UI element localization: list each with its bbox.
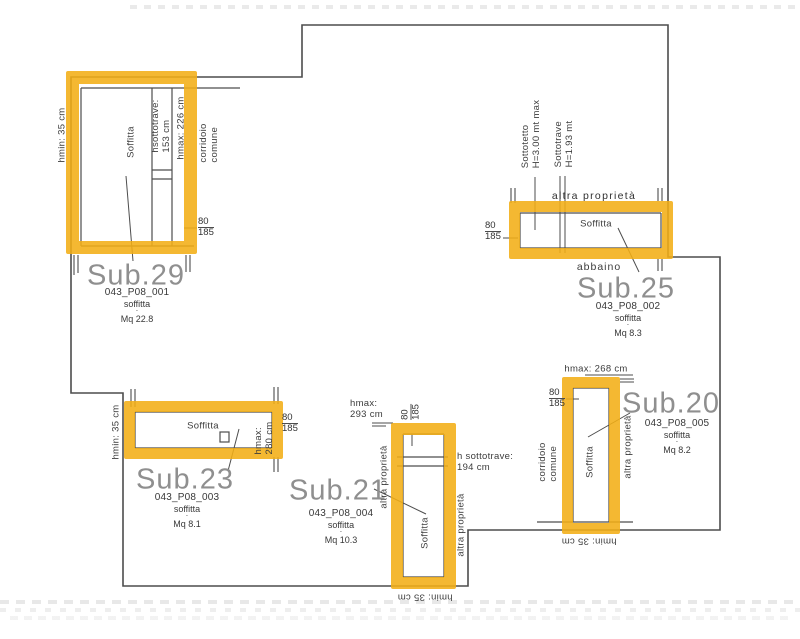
sub25-sottotrave-label: Sottotrave H=1.93 mt (554, 121, 576, 168)
door-height: 185 (282, 424, 298, 434)
sub23-door-size-label: 80 185 (282, 413, 298, 434)
sub25-caption: 043_P08_002 soffitta · Mq 8.3 (596, 301, 661, 338)
sub20-door-size-label: 80 185 (549, 388, 565, 409)
sub29-interior-label: Soffitta (126, 126, 137, 158)
floor-plan-canvas: hmin: 35 cm Soffitta hsottotrave: 153 cm… (0, 0, 800, 639)
sub29-code: 043_P08_001 (105, 287, 170, 298)
sub20-caption: 043_P08_005 soffitta · Mq 8.2 (645, 418, 710, 455)
sub21-area: Mq 10.3 (309, 535, 374, 545)
sub25-code: 043_P08_002 (596, 301, 661, 312)
caption-dot: · (155, 514, 220, 518)
sub25-door-size-label: 80 185 (485, 221, 501, 242)
sub21-highlight (391, 423, 456, 589)
sub20-corridor-label: corridoio comune (538, 442, 560, 481)
door-height: 185 (198, 228, 214, 238)
caption-dot: · (645, 440, 710, 444)
caption-dot: · (309, 530, 374, 534)
sub20-title: Sub.20 (622, 388, 720, 421)
sub20-hmin-label: hmin: 35 cm (561, 536, 616, 547)
sub20-area: Mq 8.2 (645, 445, 710, 455)
sub23-area: Mq 8.1 (155, 519, 220, 529)
sub21-sottotrave-label: h sottotrave: 194 cm (457, 452, 513, 474)
sub29-door-size-label: 80 185 (198, 217, 214, 238)
sub29-area: Mq 22.8 (105, 314, 170, 324)
sub20-code: 043_P08_005 (645, 418, 710, 429)
caption-dot: · (105, 309, 170, 313)
sub23-interior-label: Soffitta (187, 421, 219, 432)
sub25-area: Mq 8.3 (596, 328, 661, 338)
door-height: 185 (485, 232, 501, 242)
sub25-dormer-label: abbaino (577, 261, 621, 273)
sub29-corridor-label: corridoio comune (199, 123, 221, 162)
sub25-highlight (509, 201, 673, 259)
sub25-sottotetto-label: Sottotetto H=3.00 mt max (521, 100, 543, 169)
sub25-interior-label: Soffitta (580, 219, 612, 230)
sub21-hmax-label: hmax: 293 cm (350, 399, 383, 421)
caption-dot: · (596, 323, 661, 327)
sub21-interior-label: Soffitta (420, 517, 431, 549)
sub29-hsottotrave-label: hsottotrave: 153 cm (151, 99, 173, 152)
sub21-door-size-label: 80 185 (401, 404, 422, 420)
sub21-neighbor-right-label: altra proprietà (456, 493, 467, 556)
sub23-code: 043_P08_003 (155, 492, 220, 503)
sub25-neighbor-label: altra proprietà (552, 190, 636, 202)
door-height: 185 (549, 399, 565, 409)
sub29-hmin-label: hmin: 35 cm (57, 107, 68, 162)
sub21-caption: 043_P08_004 soffitta · Mq 10.3 (309, 508, 374, 545)
sub21-title: Sub.21 (289, 475, 387, 508)
door-height: 185 (412, 404, 422, 420)
sub20-hmax-label: hmax: 268 cm (564, 364, 627, 375)
sub23-hmin-label: hmin: 35 cm (111, 404, 122, 459)
sub21-hmin-label: hmin: 35 cm (397, 592, 452, 603)
sub29-hmax-label: hmax: 226 cm (176, 96, 187, 159)
sub23-hmax-label: hmax: 280 cm (254, 422, 276, 455)
sub20-interior-label: Soffitta (585, 446, 596, 478)
sub21-code: 043_P08_004 (309, 508, 374, 519)
sub23-caption: 043_P08_003 soffitta · Mq 8.1 (155, 492, 220, 529)
sub20-neighbor-label: altra proprietà (623, 415, 634, 478)
sub29-caption: 043_P08_001 soffitta · Mq 22.8 (105, 287, 170, 324)
